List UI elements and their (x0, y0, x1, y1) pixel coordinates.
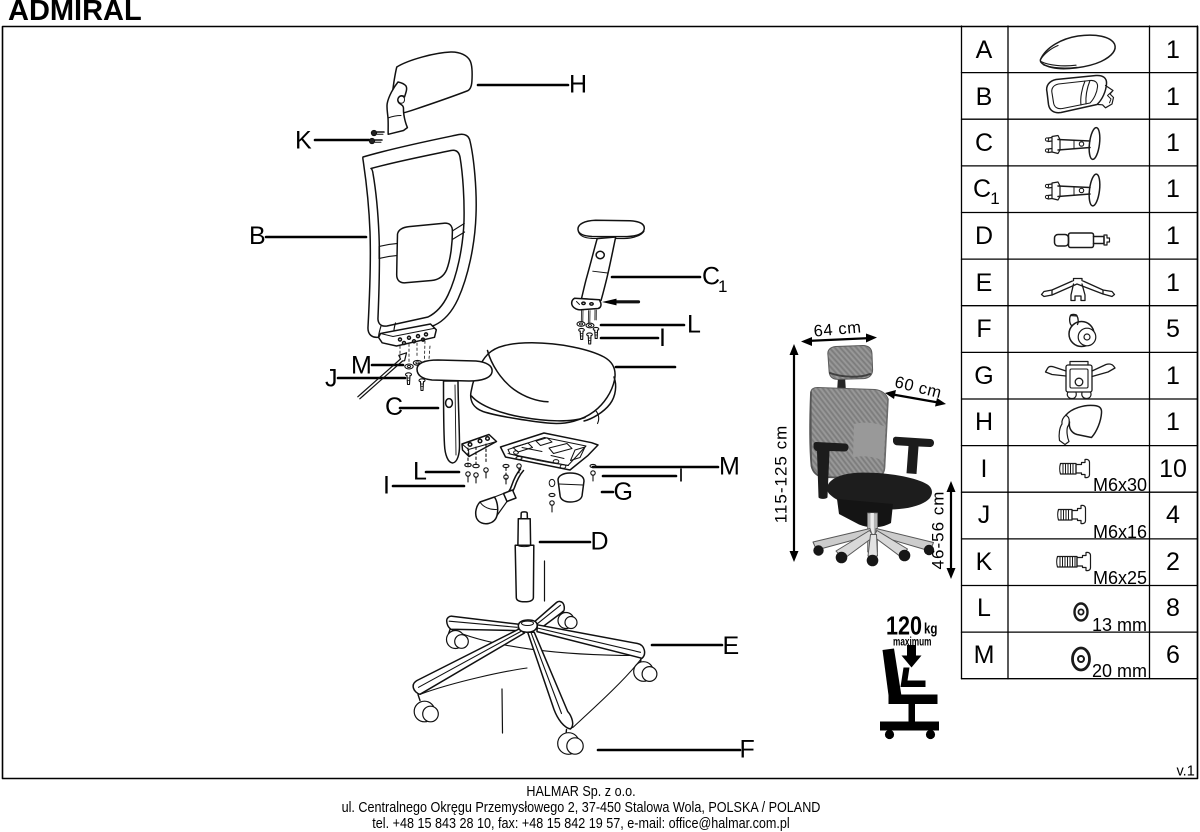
svg-text:v.1: v.1 (1177, 764, 1195, 780)
svg-text:I: I (383, 472, 390, 500)
svg-text:I: I (679, 466, 684, 486)
svg-text:M: M (719, 453, 740, 481)
svg-text:F: F (740, 736, 755, 764)
svg-text:A: A (976, 36, 993, 64)
svg-text:C: C (975, 129, 993, 157)
svg-text:J: J (978, 501, 991, 529)
svg-text:1: 1 (1166, 36, 1180, 64)
svg-text:1: 1 (1166, 222, 1180, 250)
svg-text:8: 8 (1166, 594, 1180, 622)
svg-text:10: 10 (1159, 455, 1187, 483)
svg-text:1: 1 (1166, 129, 1180, 157)
svg-text:1: 1 (1166, 83, 1180, 111)
svg-text:64 cm: 64 cm (813, 318, 862, 340)
svg-text:L: L (977, 594, 991, 622)
svg-text:4: 4 (1166, 501, 1180, 529)
svg-text:C: C (973, 175, 991, 203)
svg-text:M: M (974, 641, 995, 669)
svg-text:I: I (981, 455, 988, 483)
svg-text:M6x25: M6x25 (1093, 568, 1147, 588)
svg-text:60 cm: 60 cm (893, 373, 944, 402)
svg-text:K: K (295, 127, 312, 155)
svg-text:13 mm: 13 mm (1092, 615, 1147, 635)
svg-text:1: 1 (718, 277, 727, 296)
svg-text:G: G (614, 478, 633, 506)
svg-text:6: 6 (1166, 641, 1180, 669)
svg-text:K: K (976, 548, 993, 576)
svg-text:B: B (976, 83, 993, 111)
svg-text:46-56 cm: 46-56 cm (929, 491, 948, 570)
svg-text:B: B (249, 222, 266, 250)
svg-text:1: 1 (1166, 175, 1180, 203)
svg-text:F: F (976, 315, 991, 343)
svg-text:115-125 cm: 115-125 cm (772, 425, 791, 524)
svg-text:2: 2 (1166, 548, 1180, 576)
svg-text:1: 1 (1166, 269, 1180, 297)
svg-text:I: I (659, 324, 666, 352)
svg-text:D: D (975, 222, 993, 250)
svg-text:E: E (976, 269, 993, 297)
svg-text:E: E (723, 632, 740, 660)
svg-text:C: C (385, 393, 403, 421)
svg-text:M6x16: M6x16 (1093, 522, 1147, 542)
svg-text:5: 5 (1166, 315, 1180, 343)
svg-text:M6x30: M6x30 (1093, 475, 1147, 495)
svg-text:L: L (687, 311, 701, 339)
svg-text:D: D (591, 528, 609, 556)
svg-text:20 mm: 20 mm (1092, 661, 1147, 681)
svg-text:H: H (975, 408, 993, 436)
svg-text:G: G (974, 362, 993, 390)
svg-text:1: 1 (990, 189, 999, 208)
svg-text:J: J (325, 365, 338, 393)
svg-text:H: H (569, 71, 587, 99)
svg-text:1: 1 (1166, 362, 1180, 390)
svg-text:M: M (351, 352, 372, 380)
svg-text:L: L (413, 458, 427, 486)
svg-text:1: 1 (1166, 408, 1180, 436)
